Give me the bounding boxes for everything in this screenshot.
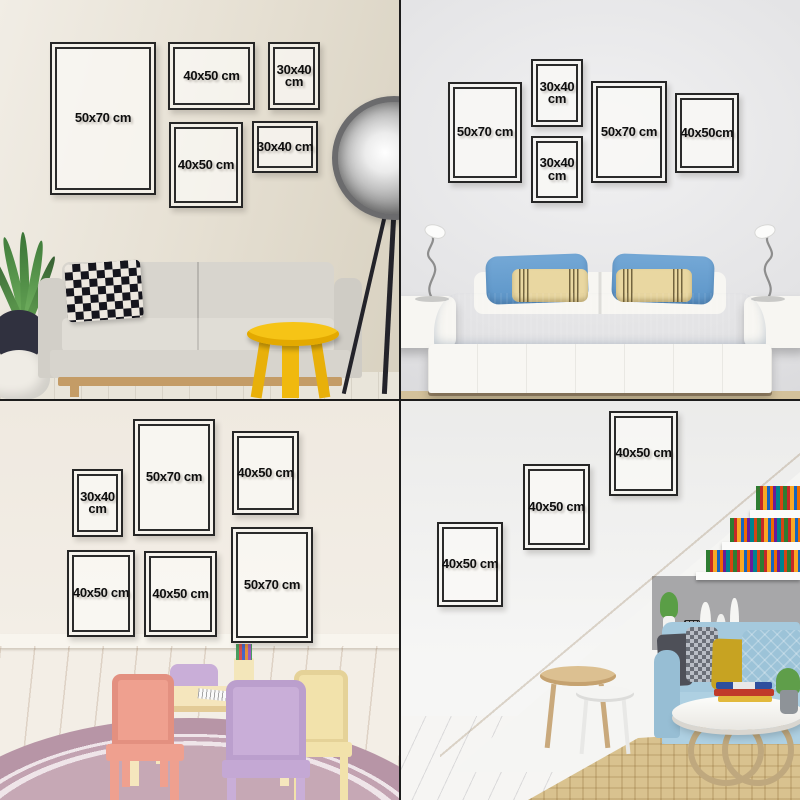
frame-size-label: 30x40 cm (538, 157, 576, 182)
frame-size-label: 40x50 cm (73, 587, 129, 599)
frame-40x50: 40x50 cm (169, 122, 243, 208)
shelf-board (750, 510, 800, 518)
frame-50x70: 50x70 cm (231, 527, 313, 643)
frame-mat: 30x40 cm (536, 64, 578, 122)
panel-kids-room: 30x40 cm 50x70 cm 40x50 cm 40x50 cm 40x5… (0, 400, 400, 800)
frame-30x40: 30x40 cm (72, 469, 123, 537)
frame-mat: 40x50 cm (149, 556, 212, 632)
frame-mat: 50x70 cm (453, 87, 517, 178)
frame-mat: 40x50 cm (237, 436, 294, 510)
frame-mat: 50x70 cm (596, 86, 662, 178)
frame-40x50: 40x50 cm (609, 411, 678, 496)
frame-size-label: 40x50cm (681, 127, 734, 139)
frame-size-label: 40x50 cm (183, 70, 239, 82)
frame-size-label: 40x50 cm (237, 467, 293, 479)
frame-40x50: 40x50 cm (523, 464, 590, 550)
horizontal-divider (0, 399, 800, 401)
frame-mat: 40x50 cm (174, 127, 238, 203)
frame-mat: 30x40 cm (273, 47, 315, 105)
frame-mat: 50x70 cm (236, 532, 308, 638)
lamp-reflector (332, 96, 400, 220)
frame-mat: 30x40 cm (257, 126, 313, 168)
frame-mat: 40x50 cm (173, 47, 250, 105)
frame-mat: 50x70 cm (138, 424, 210, 531)
frame-50x70: 50x70 cm (591, 81, 667, 183)
frame-size-label: 40x50 cm (178, 159, 234, 171)
wire-lamp-right (738, 222, 798, 302)
frame-size-label: 40x50 cm (615, 447, 671, 459)
frame-30x40: 30x40 cm (531, 59, 583, 127)
panel-staircase-room: 40x50 cm 40x50 cm 40x50 cm (400, 400, 800, 800)
frame-mat: 40x50 cm (72, 555, 130, 632)
frame-size-label: 30x40 cm (257, 141, 313, 153)
bed-platform (428, 344, 772, 393)
panel-living-room: 50x70 cm 40x50 cm 30x40 cm 40x50 cm 30x4… (0, 0, 400, 400)
frame-mockup-collage: 50x70 cm 40x50 cm 30x40 cm 40x50 cm 30x4… (0, 0, 800, 800)
frame-size-label: 40x50 cm (442, 558, 498, 570)
frame-size-label: 30x40 cm (79, 491, 116, 516)
frame-mat: 30x40 cm (536, 141, 578, 198)
frame-40x50: 40x50 cm (67, 550, 135, 637)
frame-mat: 40x50cm (680, 98, 734, 168)
frame-size-label: 50x70 cm (457, 126, 513, 138)
book-stack (718, 696, 772, 702)
frame-50x70: 50x70 cm (50, 42, 156, 195)
frame-mat: 40x50 cm (614, 416, 673, 491)
frame-40x50: 40x50 cm (437, 522, 503, 607)
frame-50x70: 50x70 cm (133, 419, 215, 536)
shelf-board (696, 572, 800, 580)
frame-size-label: 50x70 cm (75, 112, 131, 124)
frame-30x40: 30x40 cm (268, 42, 320, 110)
frame-30x40: 30x40 cm (252, 121, 318, 173)
frame-50x70: 50x70 cm (448, 82, 522, 183)
frame-size-label: 30x40 cm (275, 64, 313, 89)
frame-40x50: 40x50 cm (168, 42, 255, 110)
frame-mat: 50x70 cm (55, 47, 151, 190)
panel-bedroom: 50x70 cm 30x40 cm 30x40 cm 50x70 cm 40x5… (400, 0, 800, 400)
book-stack (716, 682, 772, 689)
frame-size-label: 40x50 cm (152, 588, 208, 600)
frame-40x50: 40x50 cm (144, 551, 217, 637)
frame-30x40: 30x40 cm (531, 136, 583, 203)
pencils (236, 644, 252, 660)
frame-size-label: 30x40 cm (538, 81, 576, 106)
frame-mat: 40x50 cm (442, 527, 498, 602)
book-row (706, 550, 800, 572)
frame-size-label: 50x70 cm (244, 579, 300, 591)
gray-vase (780, 690, 798, 714)
frame-mat: 30x40 cm (77, 474, 118, 532)
frame-size-label: 40x50 cm (528, 501, 584, 513)
book-stack (714, 689, 774, 696)
triangle-pattern-pillow (64, 259, 144, 322)
shelf-board (722, 542, 800, 550)
shelf-plant (660, 592, 678, 618)
frame-mat: 40x50 cm (528, 469, 585, 545)
frame-size-label: 50x70 cm (146, 471, 202, 483)
frame-40x50: 40x50cm (675, 93, 739, 173)
frame-size-label: 50x70 cm (601, 126, 657, 138)
wire-lamp-left (402, 222, 462, 302)
sofa-wood-base (58, 377, 342, 386)
frame-40x50: 40x50 cm (232, 431, 299, 515)
